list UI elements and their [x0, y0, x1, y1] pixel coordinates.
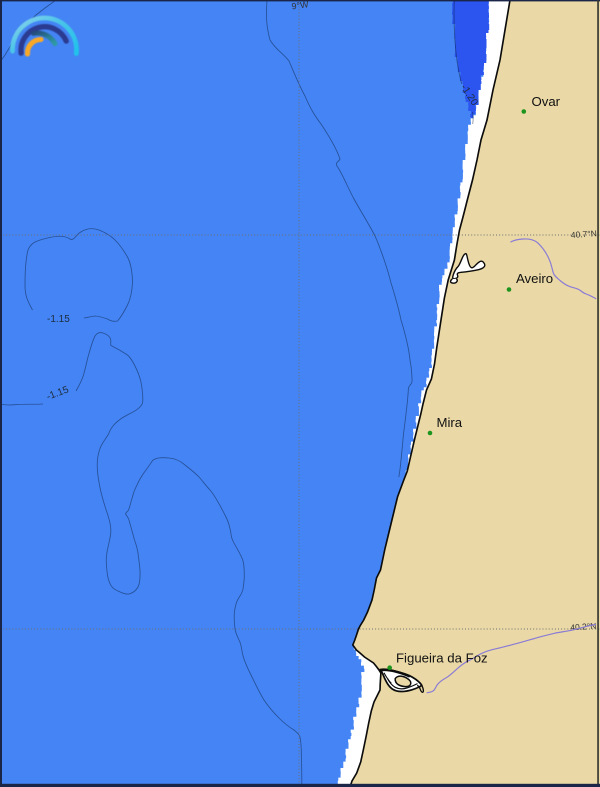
- svg-text:Mira: Mira: [437, 415, 463, 430]
- svg-text:Aveiro: Aveiro: [516, 271, 553, 286]
- svg-text:-1.15: -1.15: [47, 314, 70, 325]
- svg-text:40.7°N: 40.7°N: [570, 228, 597, 240]
- svg-text:Ovar: Ovar: [532, 94, 561, 109]
- svg-text:Figueira da Foz: Figueira da Foz: [396, 651, 488, 666]
